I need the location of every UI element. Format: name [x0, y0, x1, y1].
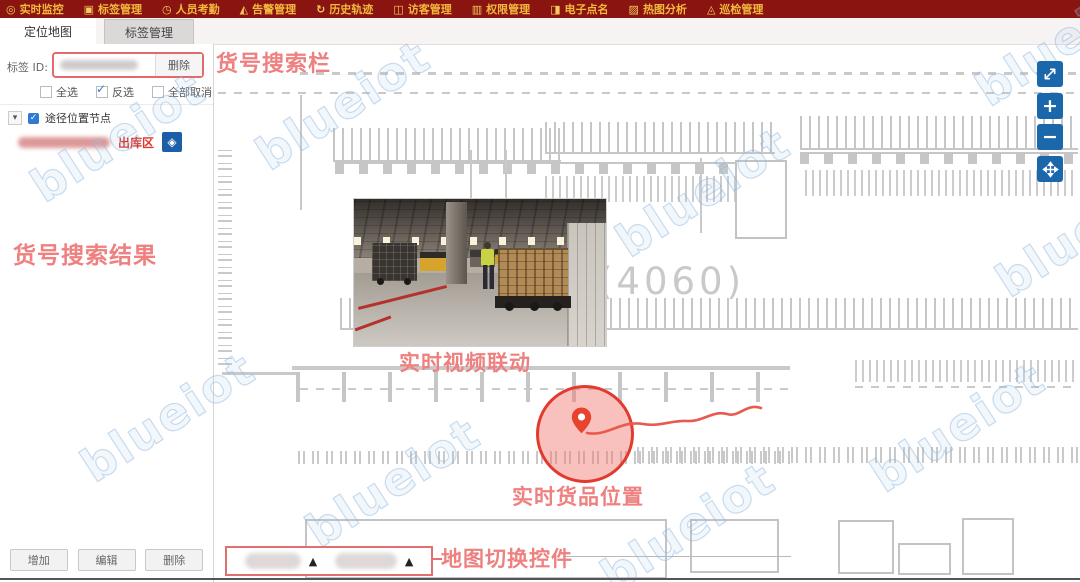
divider	[0, 104, 213, 105]
menu-label: 人员考勤	[176, 1, 220, 17]
movement-trail	[575, 392, 770, 442]
menu-permission-management[interactable]: ▥权限管理	[472, 1, 530, 17]
expand-icon	[1042, 66, 1058, 82]
menu-roll-call[interactable]: ◨电子点名	[550, 1, 608, 17]
dropdown-arrow-icon: ▲	[309, 555, 317, 568]
annotation-video-link: 实时视频联动	[399, 347, 531, 377]
annotation-map-switcher: 地图切换控件	[441, 543, 573, 573]
video-worker-legs	[483, 265, 494, 289]
delete-button[interactable]: 删除	[145, 549, 203, 571]
cad-rack-row	[545, 122, 775, 154]
menu-label: 电子点名	[565, 1, 609, 17]
sidebar-action-buttons: 增加 编辑 删除	[0, 549, 213, 571]
search-result-item[interactable]: 出库区 ◈	[18, 132, 182, 152]
location-pin-icon[interactable]	[571, 407, 592, 434]
map-area-label: (4060)	[598, 260, 745, 303]
menu-visitor-management[interactable]: ◫访客管理	[393, 1, 451, 17]
video-pillar	[446, 202, 467, 284]
app-window: ◎实时监控 ▣标签管理 ◷人员考勤 ◭告警管理 ↻历史轨迹 ◫访客管理 ▥权限管…	[0, 0, 1080, 582]
annotation-search-bar: 货号搜索栏	[216, 46, 331, 78]
cad-zone-rect	[838, 520, 894, 574]
floor-dropdown[interactable]: ▲	[335, 553, 413, 569]
cad-linework	[635, 447, 1080, 463]
menu-label: 告警管理	[252, 1, 296, 17]
tree-checkbox-checked-icon[interactable]: ✓	[28, 113, 39, 124]
shield-icon: ▥	[472, 4, 482, 15]
clock-icon: ◷	[162, 4, 172, 15]
tag-id-label: 标签 ID:	[7, 59, 48, 75]
redacted-result-id	[18, 137, 110, 148]
window-bottom-edge	[0, 578, 1080, 580]
menu-alarm-management[interactable]: ◭告警管理	[240, 1, 296, 17]
tab-tag-management[interactable]: 标签管理	[104, 19, 194, 44]
tree-node-waypoints[interactable]: ▾ ✓ 途径位置节点	[8, 110, 111, 126]
cad-linework	[735, 160, 787, 239]
menu-label: 标签管理	[98, 1, 142, 17]
tab-locating-map[interactable]: 定位地图	[0, 18, 96, 44]
cad-linework	[300, 388, 788, 390]
map-switcher-control: ▲ ▲	[225, 546, 433, 576]
zone-label: 出库区	[118, 134, 154, 151]
checkbox-label: 反选	[112, 84, 134, 100]
checkbox-icon	[152, 86, 164, 98]
cad-linework	[218, 150, 232, 365]
monitor-icon: ◎	[6, 4, 16, 15]
menu-tag-management[interactable]: ▣标签管理	[84, 1, 142, 17]
tag-icon: ▣	[84, 4, 94, 15]
checkbox-invert-selection[interactable]: 反选	[96, 84, 134, 100]
video-cage-cart	[372, 243, 417, 281]
video-glass-wall	[567, 223, 606, 346]
menu-label: 历史轨迹	[329, 1, 373, 17]
locate-on-map-button[interactable]: ◈	[162, 132, 182, 152]
video-worker	[484, 242, 491, 249]
annotation-cargo-position: 实时货品位置	[512, 481, 644, 511]
cad-rack-row	[333, 128, 561, 162]
caret-down-icon[interactable]: ▾	[8, 111, 22, 125]
heatmap-icon: ▨	[629, 4, 639, 15]
checkbox-icon	[96, 86, 108, 98]
history-icon: ↻	[316, 4, 325, 15]
cad-zone-rect	[962, 518, 1014, 575]
redacted-tag-id-value	[60, 60, 138, 70]
menu-inspection-management[interactable]: ◬巡检管理	[707, 1, 763, 17]
checkbox-cancel-all[interactable]: 全部取消	[152, 84, 212, 100]
cad-linework	[563, 556, 791, 557]
video-wheel	[553, 302, 562, 311]
cad-linework	[222, 372, 298, 375]
cad-linework	[855, 386, 1078, 388]
cad-linework	[218, 92, 1080, 94]
menu-realtime-monitor[interactable]: ◎实时监控	[6, 1, 64, 17]
menu-label: 热图分析	[643, 1, 687, 17]
menu-label: 实时监控	[20, 1, 64, 17]
cad-zone-rect	[898, 543, 951, 575]
bell-icon: ◭	[240, 4, 248, 15]
redacted-dropdown-value	[335, 553, 397, 569]
checkbox-label: 全选	[56, 84, 78, 100]
menu-label: 权限管理	[486, 1, 530, 17]
delete-tag-button[interactable]: 删除	[155, 54, 202, 76]
inspection-icon: ◬	[707, 4, 715, 15]
tab-strip: 定位地图 标签管理	[0, 18, 1080, 45]
menu-history-track[interactable]: ↻历史轨迹	[316, 1, 373, 17]
tag-id-search-box: 删除	[52, 52, 204, 78]
visitor-icon: ◫	[393, 4, 403, 15]
add-button[interactable]: 增加	[10, 549, 68, 571]
cad-rack-row	[855, 360, 1078, 382]
video-cage-trailer	[498, 248, 569, 303]
menu-heatmap-analysis[interactable]: ▨热图分析	[629, 1, 687, 17]
checkbox-select-all[interactable]: 全选	[40, 84, 78, 100]
selection-checkboxes: 全选 反选 全部取消	[40, 84, 212, 100]
move-icon	[1042, 161, 1059, 178]
pan-button[interactable]	[1037, 156, 1063, 182]
fullscreen-button[interactable]	[1037, 61, 1063, 87]
menu-label: 访客管理	[408, 1, 452, 17]
cad-linework	[292, 366, 790, 370]
top-menu-bar: ◎实时监控 ▣标签管理 ◷人员考勤 ◭告警管理 ↻历史轨迹 ◫访客管理 ▥权限管…	[0, 0, 1080, 18]
building-dropdown[interactable]: ▲	[245, 553, 317, 569]
menu-label: 巡检管理	[719, 1, 763, 17]
cad-zone-rect	[690, 519, 779, 573]
tag-id-row: 标签 ID: 删除	[0, 52, 213, 78]
tree-node-label: 途径位置节点	[45, 110, 111, 126]
rollcall-icon: ◨	[550, 4, 560, 15]
checkbox-label: 全部取消	[168, 84, 212, 100]
menu-attendance[interactable]: ◷人员考勤	[162, 1, 220, 17]
redacted-dropdown-value	[245, 553, 301, 569]
zoom-in-button[interactable]: +	[1037, 93, 1063, 119]
live-video-feed[interactable]	[353, 198, 607, 347]
annotation-search-results: 货号搜索结果	[13, 236, 157, 270]
cad-linework	[300, 95, 302, 210]
zoom-out-button[interactable]: −	[1037, 124, 1063, 150]
cad-linework	[300, 72, 1078, 75]
sidebar: 标签 ID: 删除 全选 反选 全部取消 ▾ ✓ 途径位置节点 出库区 ◈ 货号…	[0, 44, 214, 582]
checkbox-icon	[40, 86, 52, 98]
edit-button[interactable]: 编辑	[78, 549, 136, 571]
video-worker-vest	[481, 249, 494, 266]
tag-id-input[interactable]	[54, 54, 155, 76]
cad-linework	[700, 158, 702, 233]
dropdown-arrow-icon: ▲	[405, 555, 413, 568]
